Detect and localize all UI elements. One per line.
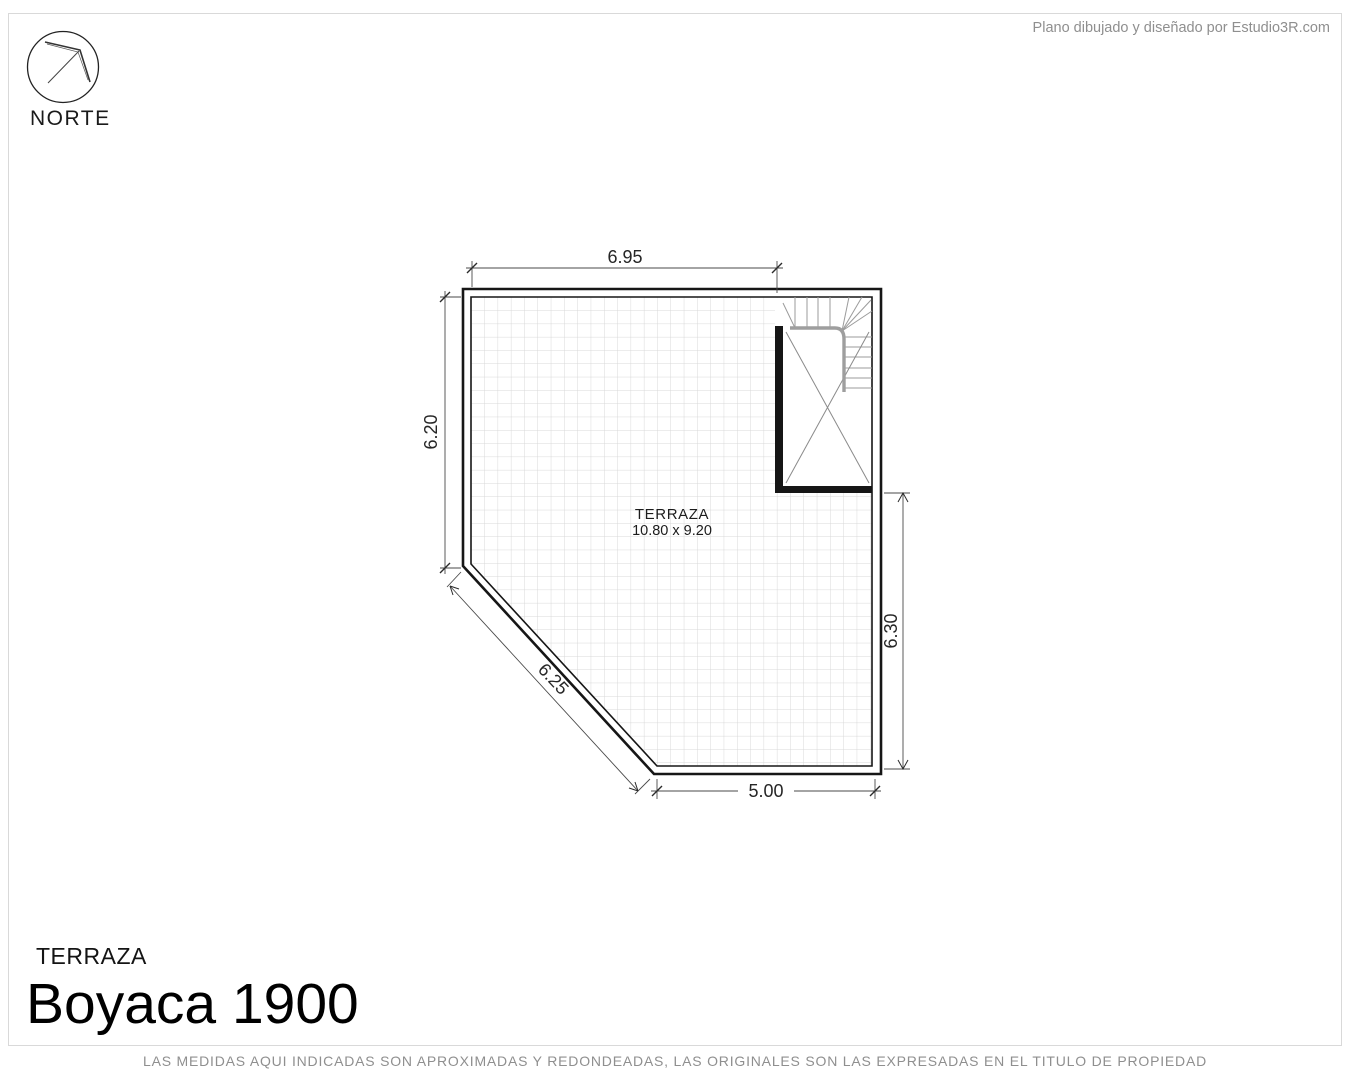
project-title: Boyaca 1900 xyxy=(26,971,359,1037)
north-label: NORTE xyxy=(30,107,111,131)
disclaimer-text: LAS MEDIDAS AQUI INDICADAS SON APROXIMAD… xyxy=(0,1053,1350,1069)
dimension-left: 6.20 xyxy=(421,291,461,574)
dimension-bottom-value: 5.00 xyxy=(748,781,783,801)
dimension-right-value: 6.30 xyxy=(881,613,901,648)
north-arrow-icon xyxy=(28,32,99,103)
stairwell-left-wall xyxy=(775,326,783,493)
stairwell-bottom-wall xyxy=(775,486,872,493)
dimension-left-value: 6.20 xyxy=(421,414,441,449)
dimension-right: 6.30 xyxy=(881,493,910,769)
dimension-top: 6.95 xyxy=(466,247,783,293)
room-name: TERRAZA xyxy=(635,506,709,523)
dimension-bottom: 5.00 xyxy=(651,779,881,801)
dimension-top-value: 6.95 xyxy=(607,247,642,267)
room-size: 10.80 x 9.20 xyxy=(632,523,712,539)
floor-plan-drawing: 6.95 6.20 6.30 5.00 6.25 TERRAZA 10.80 x… xyxy=(0,0,1350,1080)
room-label: TERRAZA 10.80 x 9.20 xyxy=(632,506,712,539)
floor-label: TERRAZA xyxy=(36,943,147,970)
